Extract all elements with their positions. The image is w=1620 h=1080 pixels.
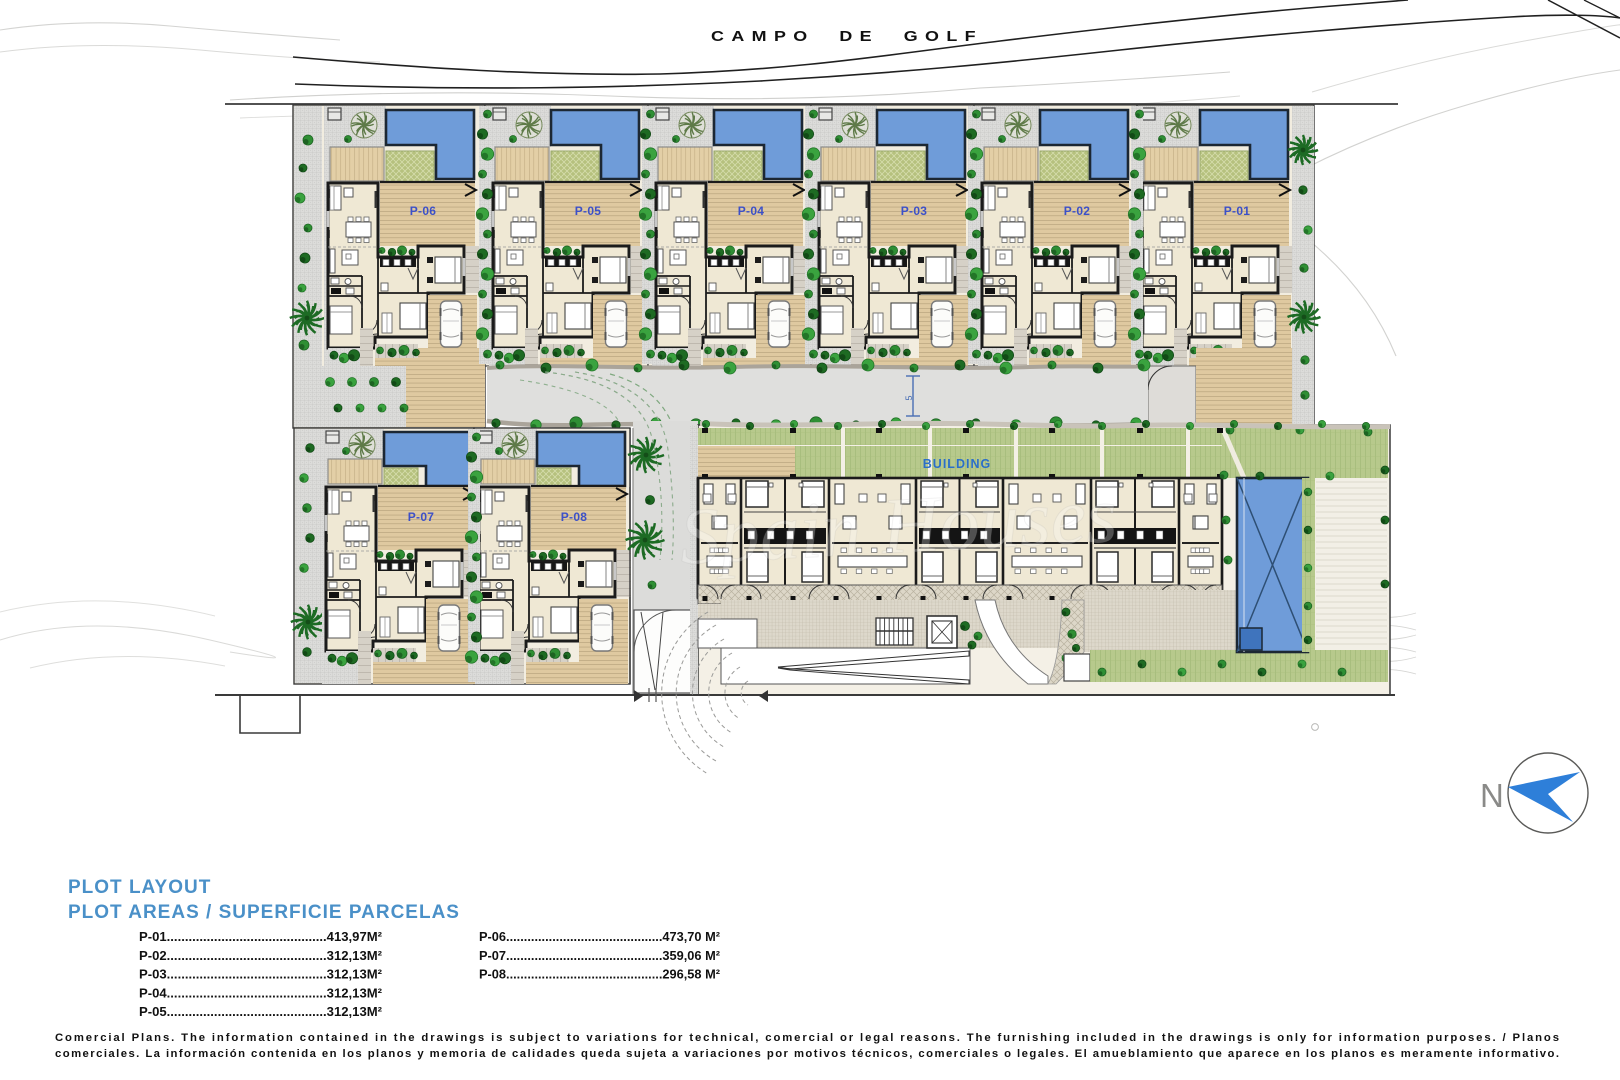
- svg-text:P-05: P-05: [575, 204, 602, 218]
- svg-text:PLOT AREAS / SUPERFICIE PARCEL: PLOT AREAS / SUPERFICIE PARCELAS: [68, 902, 460, 923]
- svg-text:P-06..........................: P-06....................................…: [479, 930, 720, 944]
- svg-text:P-05..........................: P-05....................................…: [139, 1005, 382, 1019]
- svg-text:PLOT LAYOUT: PLOT LAYOUT: [68, 877, 211, 898]
- svg-text:P-07..........................: P-07....................................…: [479, 949, 720, 963]
- svg-text:5: 5: [904, 395, 914, 400]
- svg-text:P-07: P-07: [408, 510, 435, 524]
- svg-text:P-06: P-06: [410, 204, 437, 218]
- svg-text:P-04..........................: P-04....................................…: [139, 986, 382, 1000]
- svg-text:P-08: P-08: [561, 510, 588, 524]
- svg-text:BUILDING: BUILDING: [923, 457, 991, 471]
- svg-text:CAMPO DE GOLF: CAMPO DE GOLF: [711, 29, 983, 45]
- svg-text:P-04: P-04: [738, 204, 765, 218]
- svg-text:P-01..........................: P-01....................................…: [139, 930, 382, 944]
- svg-text:P-03..........................: P-03....................................…: [139, 968, 382, 982]
- svg-text:P-01: P-01: [1224, 204, 1251, 218]
- svg-text:P-02: P-02: [1064, 204, 1091, 218]
- svg-text:P-02..........................: P-02....................................…: [139, 949, 382, 963]
- svg-text:P-08..........................: P-08....................................…: [479, 968, 720, 982]
- svg-text:comerciales. La información co: comerciales. La información contenida en…: [55, 1048, 1559, 1060]
- svg-text:N: N: [1480, 777, 1504, 814]
- svg-text:P-03: P-03: [901, 204, 928, 218]
